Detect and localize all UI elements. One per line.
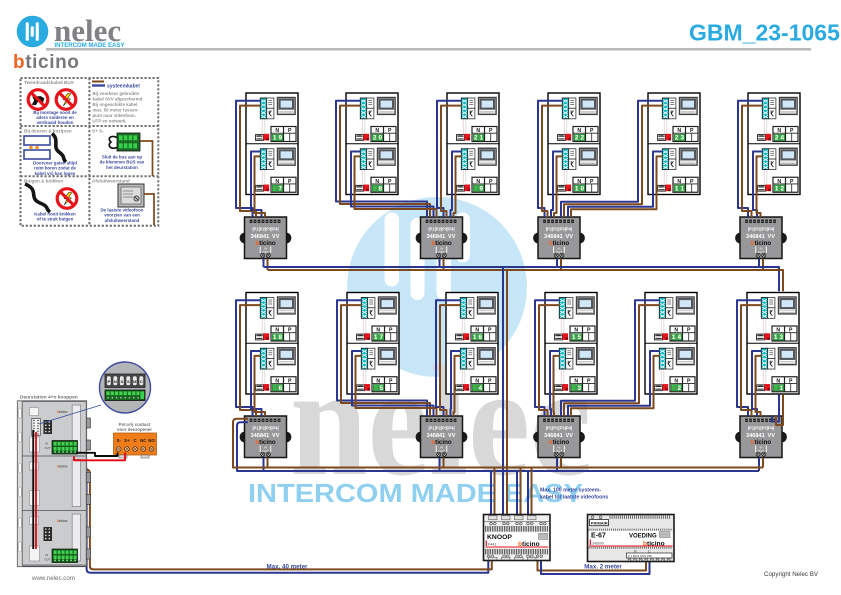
svg-text:1: 1	[780, 385, 784, 392]
svg-text:voor deuropener: voor deuropener	[117, 427, 152, 432]
svg-text:Bij ongeschikte kabel: Bij ongeschikte kabel	[93, 102, 138, 107]
svg-text:NO: NO	[148, 438, 155, 443]
svg-text:Bij deuren & kozijnen: Bij deuren & kozijnen	[24, 129, 72, 134]
svg-text:2: 2	[775, 135, 779, 142]
svg-text:S-: S-	[117, 438, 122, 443]
svg-text:6: 6	[279, 385, 283, 392]
svg-text:Max. 2 meter: Max. 2 meter	[584, 564, 622, 571]
svg-text:P: P	[107, 379, 110, 384]
svg-text:3: 3	[780, 334, 784, 341]
svg-text:2: 2	[575, 135, 579, 142]
svg-text:S: S	[120, 379, 123, 384]
svg-text:OUT: OUT	[45, 558, 51, 562]
svg-text:KNOOP: KNOOP	[487, 534, 512, 541]
svg-text:S+ S-: S+ S-	[92, 129, 104, 134]
svg-text:kabel SVV afgeschermd: kabel SVV afgeschermd	[93, 97, 143, 102]
svg-text:5: 5	[380, 385, 384, 392]
svg-text:346000: 346000	[592, 542, 604, 546]
svg-text:kabel tot laatste videofoons: kabel tot laatste videofoons	[540, 495, 608, 501]
svg-text:5: 5	[578, 334, 582, 341]
svg-text:9: 9	[480, 185, 484, 192]
svg-text:7: 7	[279, 185, 283, 192]
svg-text:max. 50 meter tussen-: max. 50 meter tussen-	[93, 108, 140, 113]
svg-text:2: 2	[675, 135, 679, 142]
svg-text:2: 2	[678, 385, 682, 392]
svg-text:1: 1	[273, 334, 277, 341]
svg-text:C: C	[140, 379, 143, 384]
svg-text:6: 6	[479, 334, 483, 341]
svg-text:1: 1	[775, 185, 779, 192]
svg-text:VOEDING: VOEDING	[629, 534, 657, 540]
svg-text:8: 8	[379, 185, 383, 192]
svg-text:2: 2	[373, 135, 377, 142]
svg-text:0: 0	[581, 185, 585, 192]
svg-text:kabel vrij kan lopen: kabel vrij kan lopen	[35, 171, 76, 176]
svg-text:4: 4	[678, 334, 682, 341]
svg-text:systeemkabel: systeemkabel	[107, 84, 140, 90]
svg-text:NC: NC	[140, 438, 147, 443]
svg-text:Afsluitweerstand: Afsluitweerstand	[92, 179, 130, 184]
svg-text:IN: IN	[46, 442, 49, 446]
svg-text:GBM_23-1065: GBM_23-1065	[689, 20, 840, 46]
svg-text:1: 1	[672, 334, 676, 341]
svg-text:1: 1	[480, 135, 484, 142]
svg-text:het deurstation: het deurstation	[106, 165, 138, 170]
svg-text:3: 3	[578, 385, 582, 392]
svg-text:of te strak buigen: of te strak buigen	[37, 217, 74, 222]
svg-text:INTERCOM MADE EASY: INTERCOM MADE EASY	[248, 478, 583, 508]
svg-text:INTERCOM MADE EASY: INTERCOM MADE EASY	[55, 43, 125, 49]
svg-text:S+: S+	[124, 438, 130, 443]
svg-text:Deurstation 4+n knoppen: Deurstation 4+n knoppen	[20, 395, 78, 401]
svg-text:E-67: E-67	[591, 533, 606, 540]
svg-text:1: 1	[473, 334, 477, 341]
svg-text:S: S	[127, 379, 130, 384]
svg-text:bticino: bticino	[57, 465, 68, 469]
svg-text:IN: IN	[46, 553, 49, 557]
svg-text:Copyright Nelec BV: Copyright Nelec BV	[764, 571, 819, 578]
svg-text:N: N	[114, 379, 117, 384]
svg-text:1: 1	[681, 185, 685, 192]
svg-text:bticino: bticino	[57, 519, 68, 523]
svg-text:1: 1	[774, 334, 778, 341]
svg-text:1: 1	[675, 185, 679, 192]
svg-text:7: 7	[380, 334, 384, 341]
svg-text:punt naar videofoon.: punt naar videofoon.	[93, 113, 136, 118]
svg-text:PRIMAIR: PRIMAIR	[591, 520, 608, 525]
svg-text:0: 0	[379, 135, 383, 142]
svg-text:Tweedraadskabel BUS: Tweedraadskabel BUS	[24, 80, 74, 85]
svg-text:Buigen & knikken: Buigen & knikken	[24, 179, 63, 184]
svg-text:9: 9	[279, 135, 283, 142]
svg-text:2: 2	[474, 135, 478, 142]
svg-text:www.nelec.com: www.nelec.com	[31, 575, 75, 582]
svg-text:2: 2	[781, 185, 785, 192]
svg-text:afsluitweerstand: afsluitweerstand	[105, 218, 140, 223]
svg-text:1: 1	[374, 334, 378, 341]
svg-text:OUT: OUT	[45, 446, 51, 450]
svg-text:Bij voorkeur gebruikte: Bij voorkeur gebruikte	[93, 91, 140, 96]
svg-text:bticino: bticino	[57, 410, 68, 414]
svg-text:1: 1	[273, 135, 277, 142]
svg-text:3: 3	[681, 135, 685, 142]
svg-text:F441: F441	[488, 543, 496, 547]
svg-text:UTP en netwerk.: UTP en netwerk.	[93, 119, 127, 124]
svg-text:verdraaid houden: verdraaid houden	[37, 120, 74, 125]
svg-text:4: 4	[781, 135, 785, 142]
svg-text:bticino: bticino	[13, 52, 79, 73]
svg-text:Max. 40 meter: Max. 40 meter	[267, 564, 309, 571]
svg-text:1: 1	[575, 185, 579, 192]
svg-text:Max. 100 meter systeem-: Max. 100 meter systeem-	[540, 488, 601, 494]
svg-text:2: 2	[581, 135, 585, 142]
svg-text:2 1 BUS SCS PRI: 2 1 BUS SCS PRI	[628, 554, 652, 558]
svg-text:1: 1	[572, 334, 576, 341]
svg-text:4: 4	[479, 385, 483, 392]
svg-text:8: 8	[279, 334, 283, 341]
